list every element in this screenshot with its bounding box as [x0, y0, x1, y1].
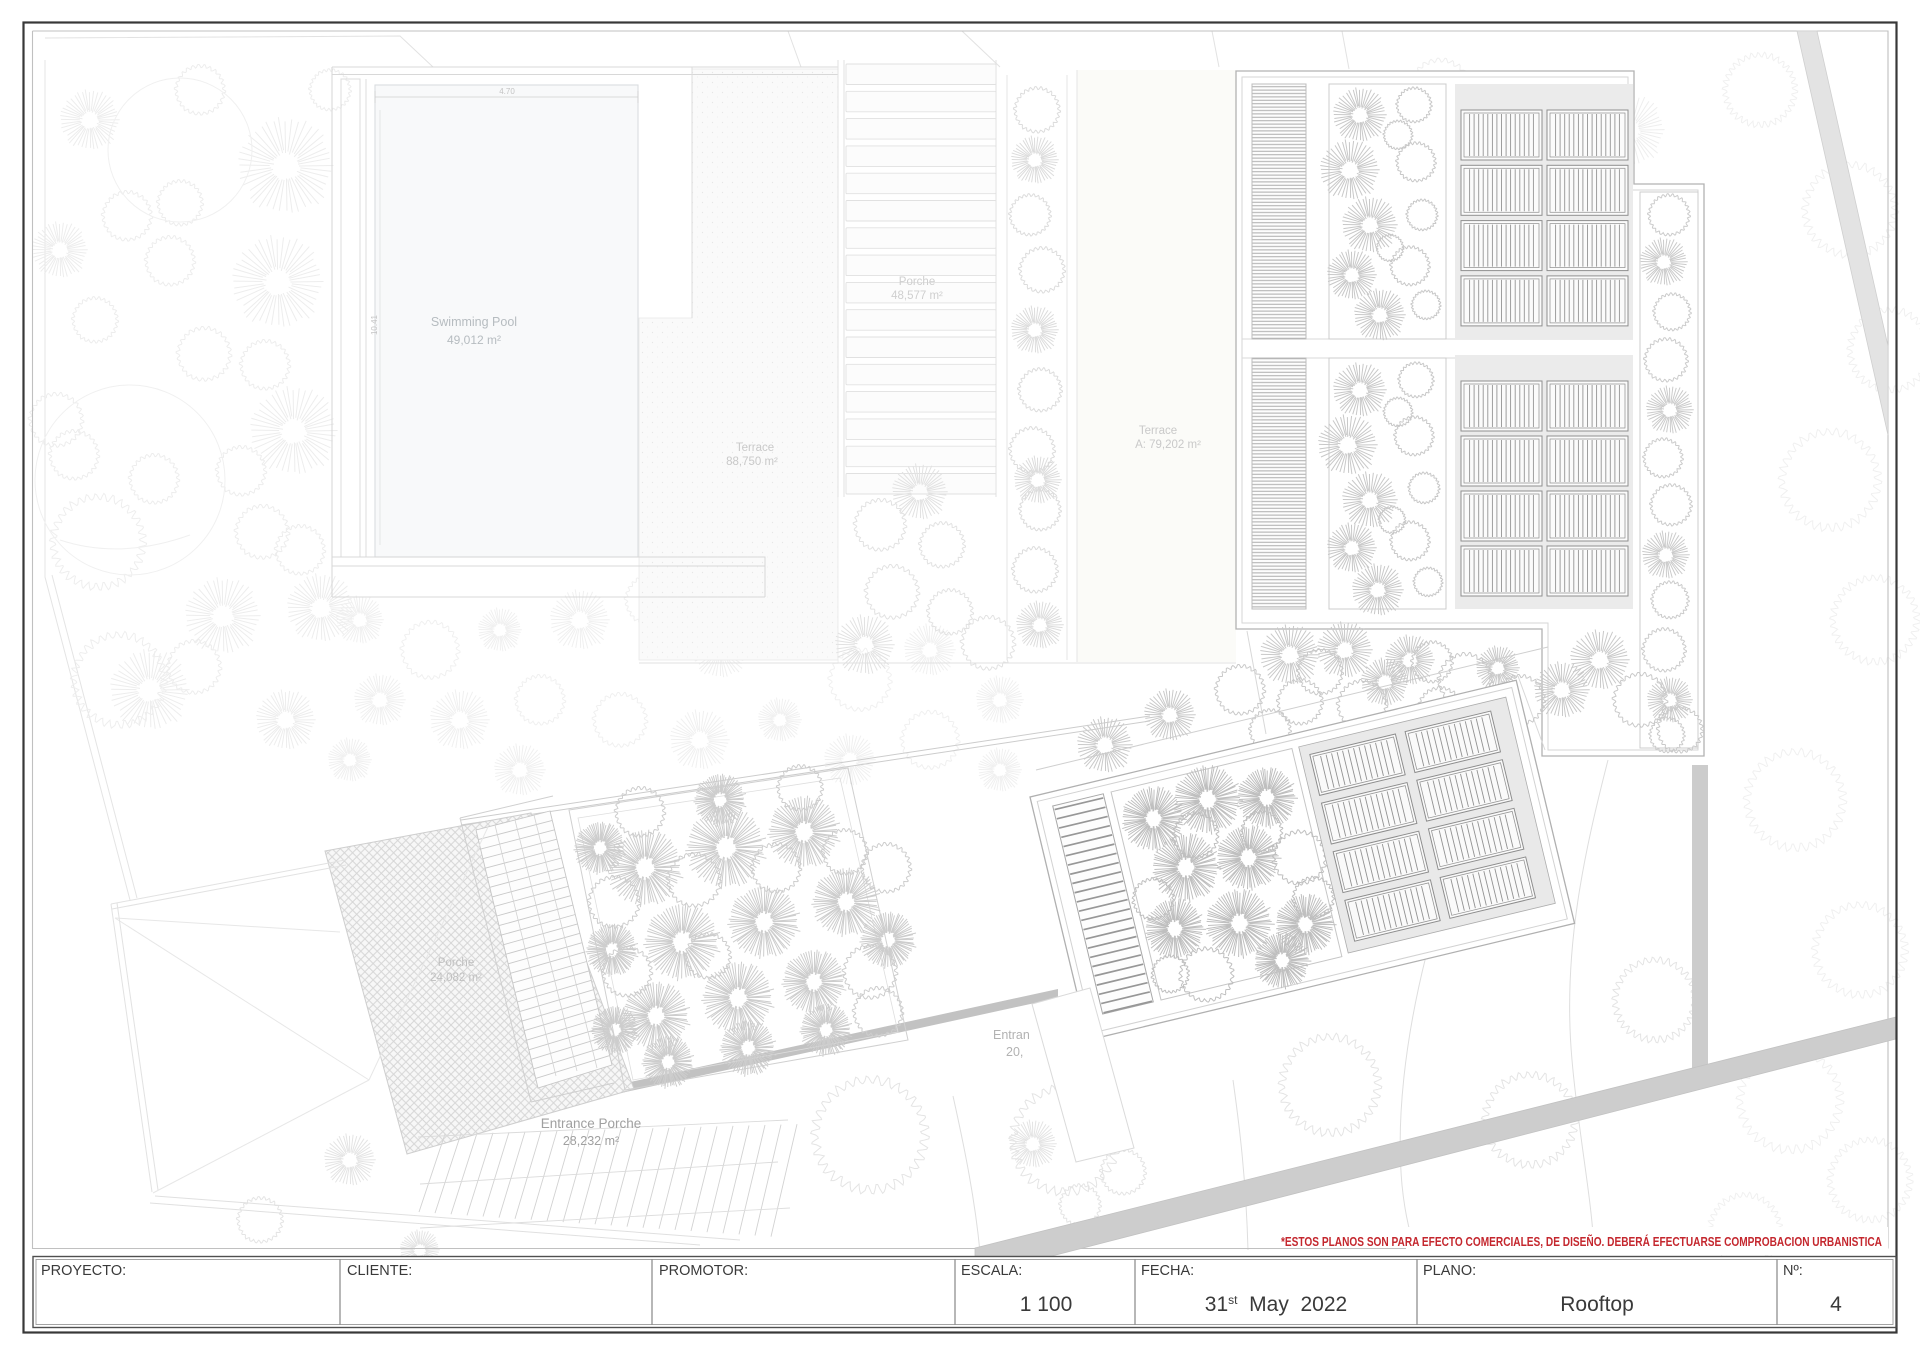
svg-text:88,750 m²: 88,750 m² — [726, 456, 778, 468]
svg-text:A: 79,202 m²: A: 79,202 m² — [1135, 439, 1201, 451]
svg-text:Porche: Porche — [899, 276, 935, 288]
svg-text:Nº:: Nº: — [1783, 1263, 1803, 1279]
svg-text:4.70: 4.70 — [499, 87, 515, 96]
svg-text:31st May 2022: 31st May 2022 — [1205, 1293, 1347, 1316]
svg-text:*ESTOS PLANOS SON PARA EFECTO: *ESTOS PLANOS SON PARA EFECTO COMERCIALE… — [1281, 1234, 1882, 1249]
svg-text:CLIENTE:: CLIENTE: — [347, 1263, 412, 1279]
svg-text:10.41: 10.41 — [370, 314, 379, 335]
svg-text:PLANO:: PLANO: — [1423, 1263, 1476, 1279]
svg-text:Terrace: Terrace — [1139, 425, 1177, 437]
svg-text:PROMOTOR:: PROMOTOR: — [659, 1263, 748, 1279]
svg-text:Swimming Pool: Swimming Pool — [431, 315, 517, 329]
svg-text:1 100: 1 100 — [1020, 1293, 1073, 1316]
svg-text:ESCALA:: ESCALA: — [961, 1263, 1022, 1279]
svg-text:20,: 20, — [1006, 1045, 1023, 1059]
svg-text:28,232 m²: 28,232 m² — [563, 1134, 619, 1148]
svg-text:48,577 m²: 48,577 m² — [891, 290, 943, 302]
svg-text:Terrace: Terrace — [736, 442, 774, 454]
svg-text:24,082 m²: 24,082 m² — [430, 972, 482, 984]
svg-text:4: 4 — [1830, 1293, 1842, 1316]
svg-text:49,012 m²: 49,012 m² — [447, 333, 501, 347]
svg-text:FECHA:: FECHA: — [1141, 1263, 1194, 1279]
svg-text:Entrance Porche: Entrance Porche — [541, 1116, 642, 1131]
svg-text:PROYECTO:: PROYECTO: — [41, 1263, 126, 1279]
svg-text:Rooftop: Rooftop — [1560, 1293, 1634, 1316]
svg-text:Entran: Entran — [993, 1028, 1030, 1042]
svg-text:Porche: Porche — [438, 957, 474, 969]
